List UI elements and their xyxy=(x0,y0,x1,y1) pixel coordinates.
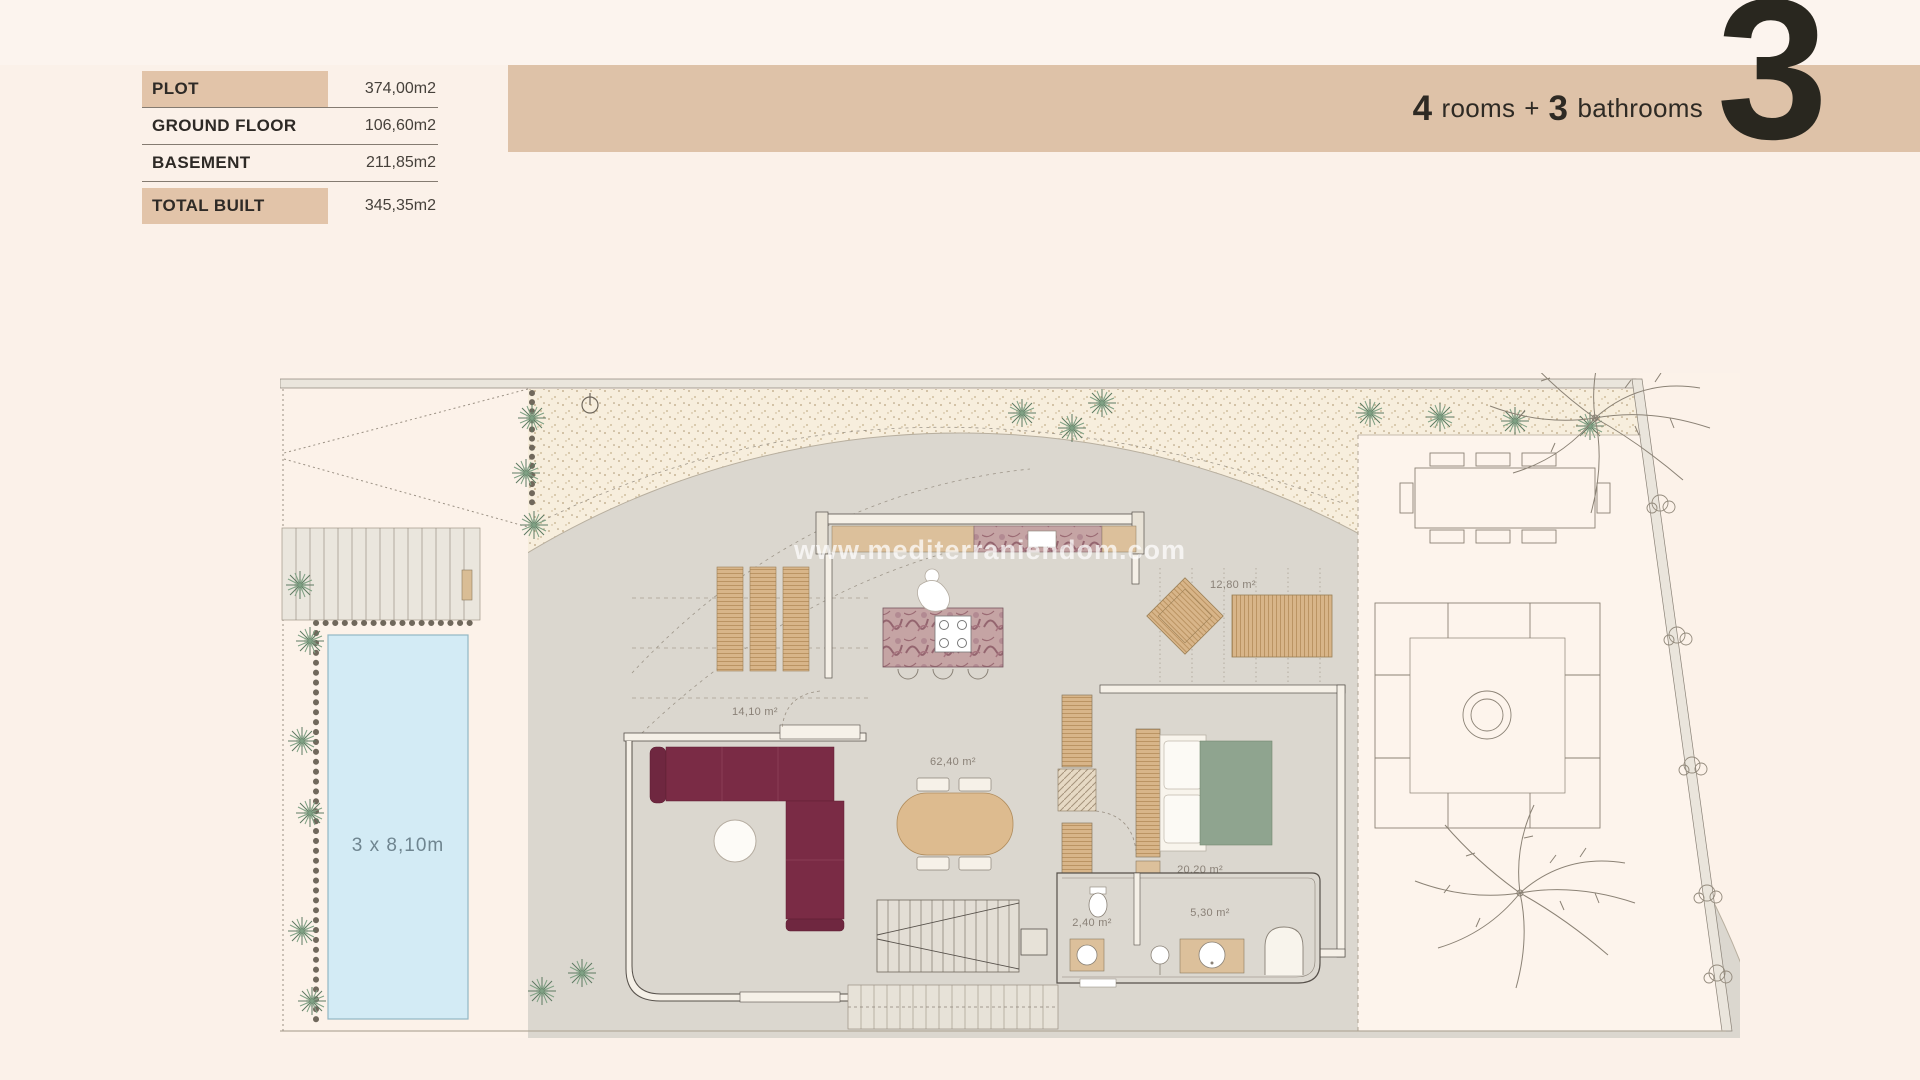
bathrooms-count: 3 xyxy=(1548,89,1568,129)
page-top-strip xyxy=(0,0,1920,65)
pillow xyxy=(1164,741,1202,789)
wc-area-label: 2,40 m² xyxy=(1072,917,1111,929)
headboard xyxy=(1136,729,1160,857)
row-value: 345,35m2 xyxy=(328,188,438,224)
rooms-count: 4 xyxy=(1413,89,1433,129)
shower xyxy=(1265,927,1303,975)
bed xyxy=(1136,729,1272,857)
row-label: PLOT xyxy=(142,71,328,107)
area-table: PLOT 374,00m2 GROUND FLOOR 106,60m2 BASE… xyxy=(142,71,438,224)
table-row: GROUND FLOOR 106,60m2 xyxy=(142,108,438,145)
door-threshold xyxy=(1080,979,1116,987)
bathroom-area-label: 5,30 m² xyxy=(1190,907,1229,919)
bathroom-block: 2,40 m² 5,30 m² xyxy=(1057,873,1320,987)
rooms-label: rooms xyxy=(1442,93,1516,124)
plan-number: 3 xyxy=(1717,0,1828,170)
terrace-right-area-label: 12,80 m² xyxy=(1210,579,1256,591)
sun-lounger xyxy=(783,567,809,671)
row-label: GROUND FLOOR xyxy=(142,108,328,144)
exterior-steps xyxy=(848,985,1058,1029)
row-value: 106,60m2 xyxy=(328,108,438,144)
top-boundary-wall xyxy=(280,379,1636,388)
row-value: 374,00m2 xyxy=(328,71,438,107)
washbasin xyxy=(1077,945,1097,965)
pool-size-label: 3 x 8,10m xyxy=(352,835,444,856)
bathrooms-label: bathrooms xyxy=(1577,93,1703,124)
floor-plan: 3 x 8,10m 14,10 m² xyxy=(280,373,1740,1038)
table-row: PLOT 374,00m2 xyxy=(142,71,438,108)
sun-lounger xyxy=(717,567,743,671)
deck-stairs xyxy=(282,528,480,620)
terrace-left-area-label: 14,10 m² xyxy=(732,706,778,718)
duvet xyxy=(1200,741,1272,845)
living-area-label: 62,40 m² xyxy=(930,756,976,768)
row-value: 211,85m2 xyxy=(328,145,438,181)
pillow xyxy=(1164,795,1202,843)
daybed xyxy=(1232,595,1332,657)
row-label: BASEMENT xyxy=(142,145,328,181)
side-table xyxy=(714,820,756,862)
sun-lounger xyxy=(750,567,776,671)
plus-sign: + xyxy=(1524,93,1539,124)
table-row: BASEMENT 211,85m2 xyxy=(142,145,438,182)
stove xyxy=(935,616,971,652)
pedestal-sink xyxy=(1151,946,1169,964)
watermark: www.mediterraniendom.com xyxy=(793,535,1186,565)
table-row: TOTAL BUILT 345,35m2 xyxy=(142,188,438,224)
row-label: TOTAL BUILT xyxy=(142,188,328,224)
header-band: 4 rooms + 3 bathrooms xyxy=(508,65,1920,152)
toilet xyxy=(1089,893,1107,917)
pool: 3 x 8,10m xyxy=(328,635,468,1019)
